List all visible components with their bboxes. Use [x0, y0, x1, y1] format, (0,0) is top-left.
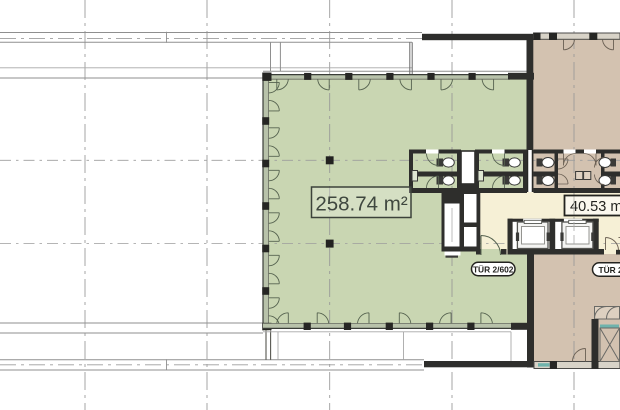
svg-text:40.53 m²: 40.53 m²: [570, 199, 620, 215]
svg-text:258.74 m²: 258.74 m²: [315, 193, 407, 216]
svg-text:TÜR 2/6: TÜR 2/6: [599, 265, 620, 275]
svg-text:TÜR 2/602: TÜR 2/602: [473, 264, 514, 274]
